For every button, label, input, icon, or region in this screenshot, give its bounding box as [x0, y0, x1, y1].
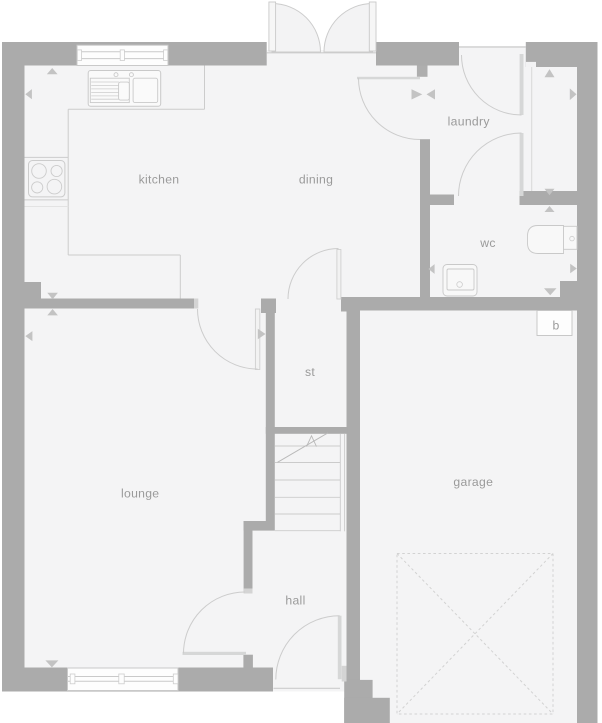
svg-text:st: st	[305, 365, 315, 379]
svg-text:lounge: lounge	[121, 487, 159, 501]
svg-text:kitchen: kitchen	[139, 173, 180, 187]
svg-text:dining: dining	[299, 173, 333, 187]
svg-text:wc: wc	[479, 236, 496, 250]
svg-text:garage: garage	[453, 475, 493, 489]
svg-text:laundry: laundry	[448, 115, 491, 129]
svg-text:hall: hall	[285, 594, 305, 608]
svg-text:b: b	[552, 319, 559, 333]
